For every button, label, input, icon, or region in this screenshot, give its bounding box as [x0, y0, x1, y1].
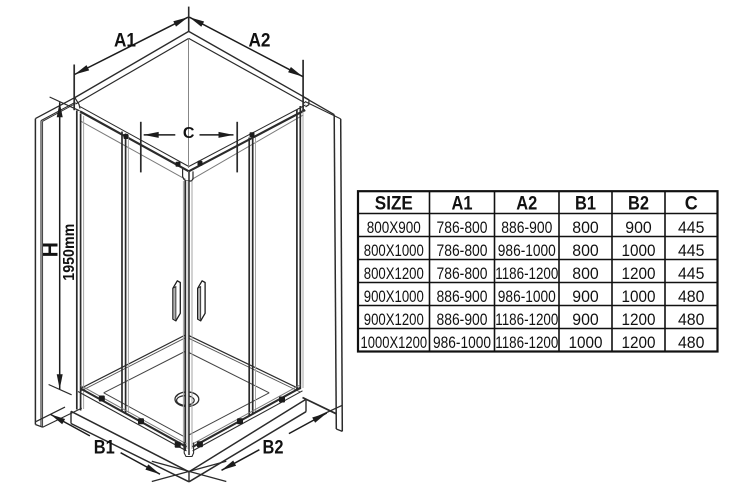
svg-text:B1: B1 — [94, 437, 115, 459]
svg-text:445: 445 — [678, 264, 705, 283]
svg-text:986-1000: 986-1000 — [433, 333, 491, 352]
svg-text:C: C — [685, 194, 698, 215]
svg-text:900: 900 — [625, 218, 652, 237]
svg-text:786-800: 786-800 — [437, 218, 488, 237]
svg-text:A1: A1 — [452, 194, 473, 215]
svg-text:886-900: 886-900 — [437, 287, 488, 306]
svg-text:786-800: 786-800 — [437, 264, 488, 283]
svg-text:800: 800 — [572, 218, 599, 237]
svg-text:1000: 1000 — [622, 287, 656, 306]
svg-text:800: 800 — [572, 241, 599, 260]
svg-text:1000X1200: 1000X1200 — [361, 333, 428, 352]
svg-text:900X1000: 900X1000 — [364, 287, 424, 306]
svg-text:H: H — [39, 242, 62, 257]
svg-text:1200: 1200 — [622, 310, 656, 329]
svg-text:986-1000: 986-1000 — [498, 287, 556, 306]
svg-text:1000: 1000 — [622, 241, 656, 260]
svg-text:B2: B2 — [263, 437, 284, 459]
svg-text:1000: 1000 — [569, 333, 603, 352]
svg-text:1186-1200: 1186-1200 — [495, 333, 558, 352]
svg-text:986-1000: 986-1000 — [498, 241, 556, 260]
svg-text:1200: 1200 — [622, 264, 656, 283]
svg-text:1186-1200: 1186-1200 — [495, 310, 558, 329]
svg-text:800X1000: 800X1000 — [364, 241, 424, 260]
svg-text:SIZE: SIZE — [375, 194, 413, 215]
svg-text:C: C — [183, 125, 195, 142]
svg-text:480: 480 — [678, 310, 705, 329]
svg-text:886-900: 886-900 — [437, 310, 488, 329]
svg-text:445: 445 — [678, 218, 705, 237]
svg-text:480: 480 — [678, 287, 705, 306]
svg-text:800X1200: 800X1200 — [364, 264, 424, 283]
svg-text:1950mm: 1950mm — [61, 224, 78, 281]
svg-text:B1: B1 — [575, 194, 596, 215]
svg-text:B2: B2 — [628, 194, 649, 215]
svg-text:1186-1200: 1186-1200 — [495, 264, 558, 283]
svg-text:900X1200: 900X1200 — [364, 310, 424, 329]
svg-text:800: 800 — [572, 264, 599, 283]
svg-text:A2: A2 — [516, 194, 537, 215]
svg-text:786-800: 786-800 — [437, 241, 488, 260]
svg-text:1200: 1200 — [622, 333, 656, 352]
svg-text:480: 480 — [678, 333, 705, 352]
svg-text:900: 900 — [572, 287, 599, 306]
svg-text:A1: A1 — [114, 30, 136, 52]
svg-text:800X900: 800X900 — [367, 218, 421, 237]
svg-text:886-900: 886-900 — [501, 218, 552, 237]
svg-text:900: 900 — [572, 310, 599, 329]
svg-text:445: 445 — [678, 241, 705, 260]
svg-text:A2: A2 — [249, 30, 271, 52]
